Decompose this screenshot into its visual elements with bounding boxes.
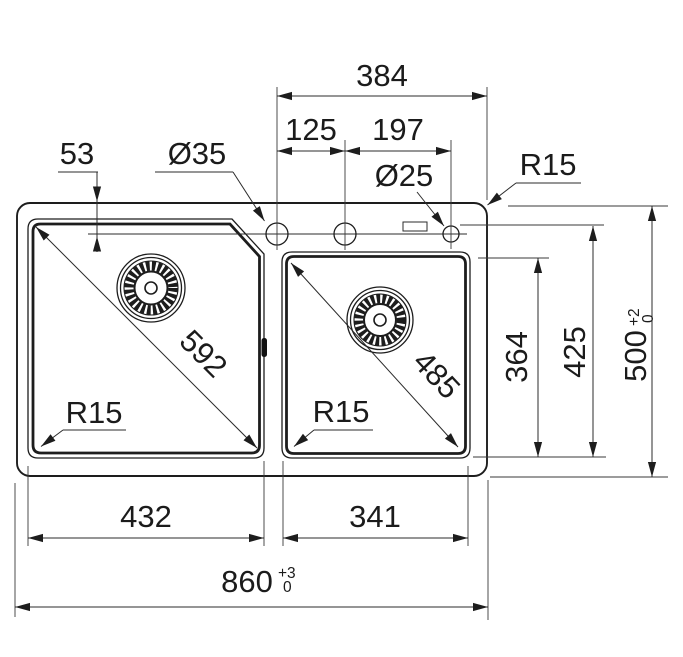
right-drain — [347, 287, 413, 353]
label-faucet-hole-dia: Ø35 — [168, 136, 227, 171]
leader-r15-left-bowl — [41, 430, 63, 447]
leader-dia25 — [417, 192, 444, 226]
label-overall-width-tol-lower: 0 — [283, 579, 292, 596]
label-overall-width: 860 — [221, 564, 273, 599]
label-right-bowl-depth: 364 — [499, 331, 534, 383]
leader-r15-right-bowl — [294, 430, 314, 447]
left-drain — [117, 254, 185, 322]
leader-dia35 — [233, 172, 265, 221]
sink-technical-drawing: 384 125 197 Ø35 Ø25 53 R15 R15 R15 432 3… — [0, 0, 683, 657]
technical-drawing-svg: 384 125 197 Ø35 Ø25 53 R15 R15 R15 432 3… — [0, 0, 683, 657]
label-inner-depth: 425 — [557, 326, 592, 378]
label-hole-pitch-left: 125 — [285, 112, 337, 147]
label-deck-span: 384 — [356, 58, 408, 93]
sink-outline — [17, 203, 487, 476]
label-right-bowl-diagonal: 485 — [406, 344, 467, 406]
label-overall-depth-tol-lower: 0 — [640, 314, 657, 323]
overflow-slot — [403, 222, 427, 231]
label-r15-left-bowl: R15 — [66, 395, 123, 430]
label-r15-right-bowl: R15 — [313, 394, 370, 429]
label-edge-to-holes: 53 — [60, 136, 94, 171]
faucet-deck — [88, 222, 467, 245]
dim-53-group — [58, 172, 98, 252]
label-left-bowl-width: 432 — [120, 499, 172, 534]
label-right-bowl-width: 341 — [349, 499, 401, 534]
label-overall-width-group: 860 +3 0 — [221, 564, 296, 599]
label-r15-top: R15 — [520, 147, 577, 182]
label-overall-depth: 500 — [618, 330, 653, 382]
label-left-bowl-diagonal: 592 — [173, 323, 234, 384]
label-hole-pitch-right: 197 — [372, 112, 424, 147]
divider-notch — [262, 338, 268, 357]
label-small-hole-dia: Ø25 — [375, 158, 434, 193]
leader-r15-top — [488, 183, 517, 205]
label-overall-depth-group: 500 +2 0 — [618, 308, 657, 382]
